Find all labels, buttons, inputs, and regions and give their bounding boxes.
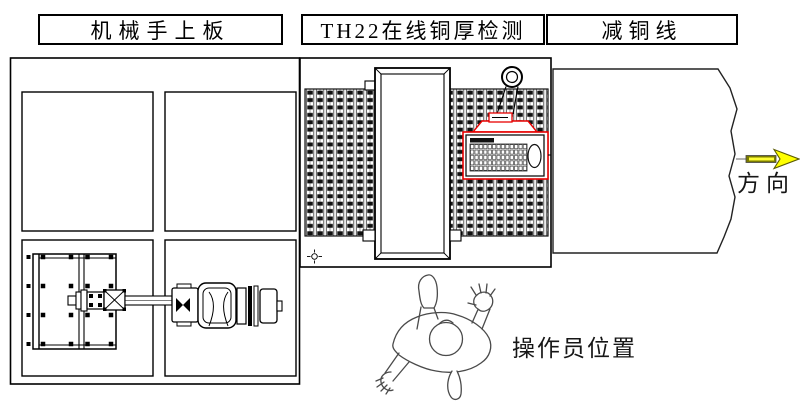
robot-wrist xyxy=(103,289,126,311)
robot-beam xyxy=(125,296,172,305)
detector-oval xyxy=(528,145,541,168)
detector-keypad xyxy=(470,144,527,171)
operator-left-hand xyxy=(381,372,393,391)
gantry-frame xyxy=(363,68,461,259)
detector-bracket xyxy=(473,121,537,132)
operator-foot xyxy=(448,371,462,399)
operator-head xyxy=(430,323,463,356)
layout-drawing xyxy=(0,0,800,414)
operator-left-upper-arm xyxy=(419,275,438,308)
inspection-machine xyxy=(300,58,552,267)
detector-label-strip xyxy=(470,138,494,143)
panel-top-right xyxy=(165,92,296,231)
robot-base xyxy=(237,286,282,326)
operator-label: 操作员位置 xyxy=(512,329,637,363)
robot-shoulder xyxy=(198,283,236,328)
robot-elbow xyxy=(172,284,198,326)
copper-line-area xyxy=(553,69,737,253)
diagram-canvas: 机械手上板 TH22在线铜厚检测 减铜线 xyxy=(0,0,800,414)
panel-top-left xyxy=(22,92,153,231)
direction-label: 方向 xyxy=(737,164,795,198)
operator-figure xyxy=(376,275,495,400)
